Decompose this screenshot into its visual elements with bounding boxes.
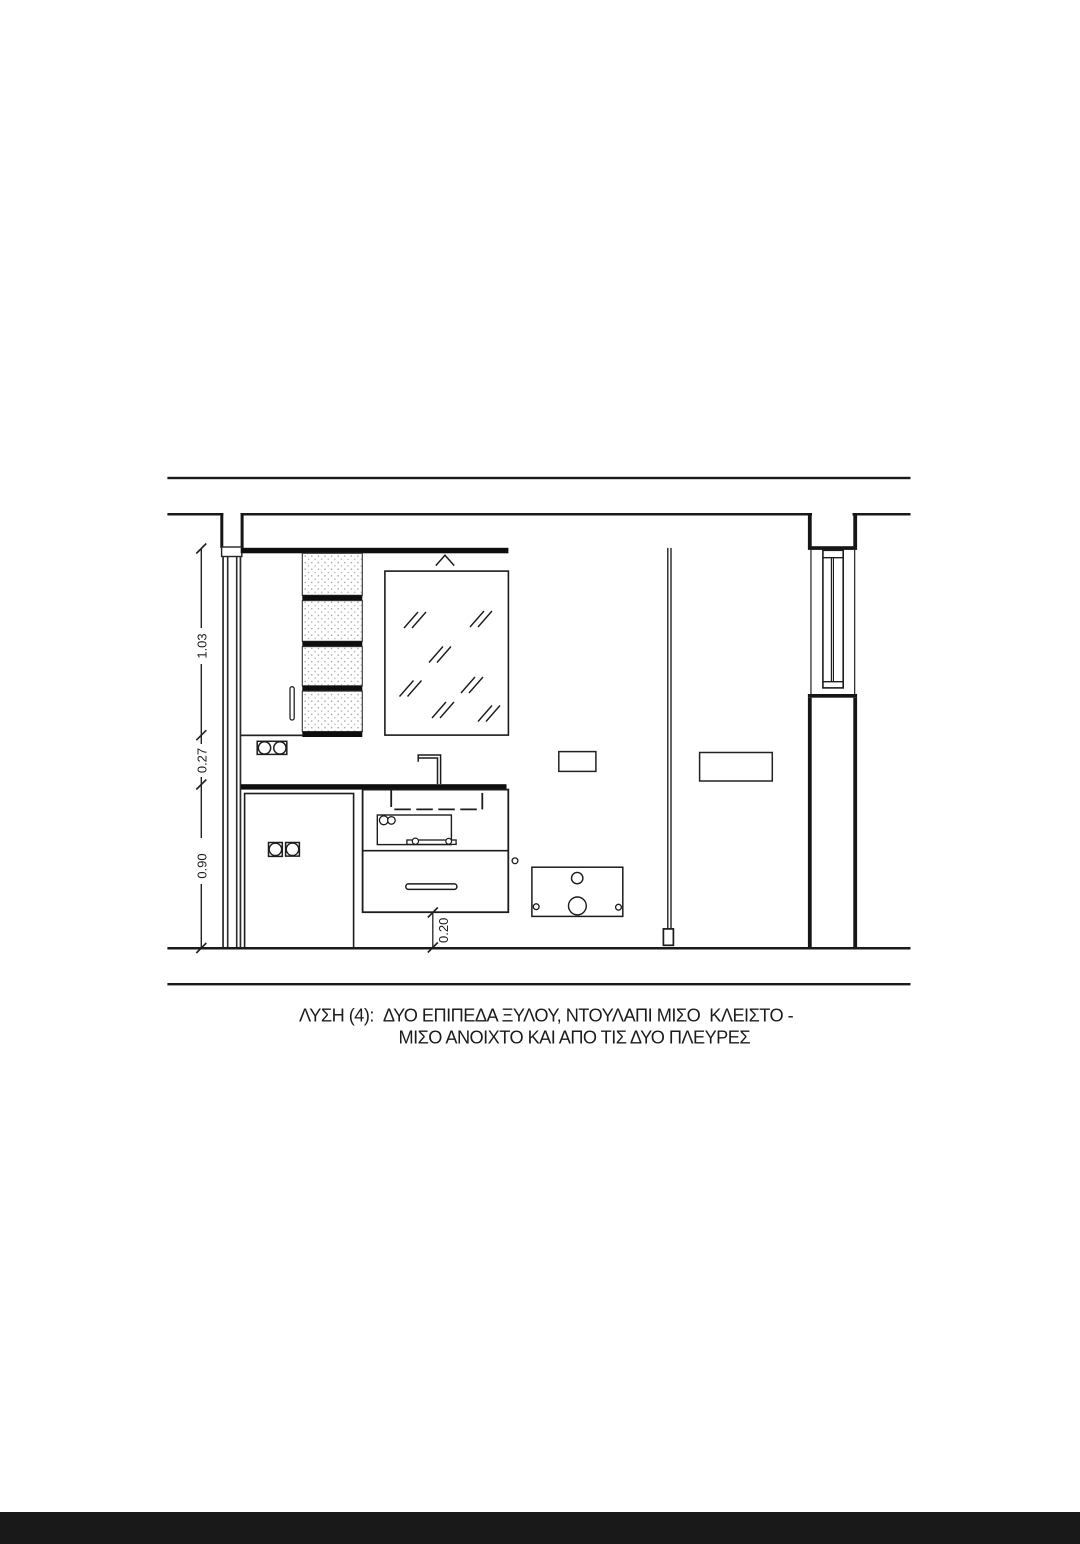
svg-text:0.90: 0.90 <box>195 853 210 878</box>
svg-text:ΜΙΣΟ ΑΝΟΙΧΤΟ ΚΑΙ ΑΠΟ ΤΙΣ ΔΥΟ Π: ΜΙΣΟ ΑΝΟΙΧΤΟ ΚΑΙ ΑΠΟ ΤΙΣ ΔΥΟ ΠΛΕΥΡΕΣ <box>399 1028 751 1048</box>
svg-text:ΛΥΣΗ (4): ΔΥΟ ΕΠΙΠΕΔΑ ΞΥΛΟΥ,: ΛΥΣΗ (4): ΔΥΟ ΕΠΙΠΕΔΑ ΞΥΛΟΥ, ΝΤΟΥΛΑΠΙ ΜΙ… <box>299 1005 794 1025</box>
svg-text:1.03: 1.03 <box>195 633 210 658</box>
svg-text:0.20: 0.20 <box>436 918 451 943</box>
svg-text:0.27: 0.27 <box>195 748 210 773</box>
